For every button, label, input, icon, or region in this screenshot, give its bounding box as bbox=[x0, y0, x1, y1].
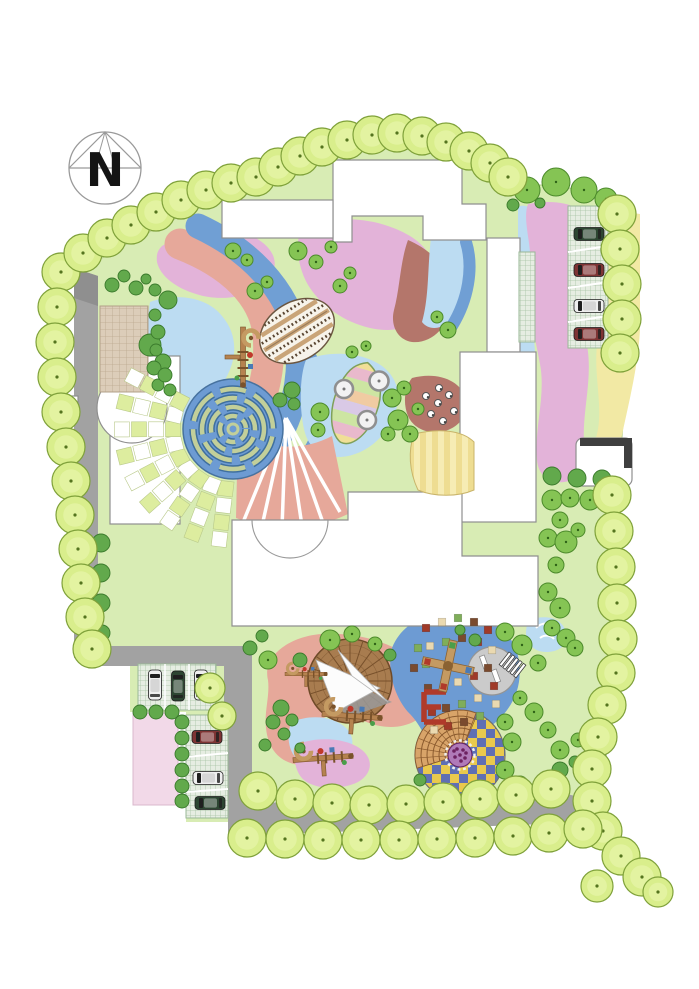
parked-car bbox=[574, 264, 604, 277]
border-tree bbox=[42, 393, 80, 431]
canopy-tree bbox=[344, 626, 360, 642]
shrub bbox=[149, 309, 161, 321]
border-tree bbox=[350, 786, 388, 824]
canopy-tree bbox=[571, 177, 597, 203]
canopy-tree bbox=[542, 490, 562, 510]
border-tree bbox=[239, 772, 277, 810]
canopy-tree bbox=[550, 598, 570, 618]
mosaic-tile bbox=[458, 700, 466, 708]
shrub bbox=[286, 714, 298, 726]
checker-cell bbox=[211, 531, 228, 548]
shrub bbox=[384, 649, 396, 661]
parked-car bbox=[192, 731, 222, 744]
shrub bbox=[284, 382, 300, 398]
canopy-tree bbox=[548, 557, 564, 573]
border-tree bbox=[266, 820, 304, 858]
border-tree bbox=[424, 783, 462, 821]
canopy-tree bbox=[311, 423, 325, 437]
striped-deck bbox=[410, 431, 474, 496]
border-tree bbox=[47, 428, 85, 466]
border-tree bbox=[38, 358, 76, 396]
canopy-tree bbox=[368, 637, 382, 651]
canopy-tree bbox=[309, 255, 323, 269]
border-tree bbox=[601, 334, 639, 372]
border-tree bbox=[595, 512, 633, 550]
shrub bbox=[507, 199, 519, 211]
shrub bbox=[149, 705, 163, 719]
paver-path-east bbox=[519, 252, 535, 342]
border-tree bbox=[62, 564, 100, 602]
shrub bbox=[175, 715, 189, 729]
border-tree bbox=[342, 821, 380, 859]
checker-cell bbox=[213, 514, 230, 531]
border-tree bbox=[497, 776, 535, 814]
mosaic-tile bbox=[430, 726, 438, 734]
shrub bbox=[149, 284, 161, 296]
building-east-wing-mid bbox=[460, 352, 536, 522]
parked-car bbox=[574, 300, 604, 313]
canopy-tree bbox=[539, 583, 557, 601]
shrub bbox=[159, 291, 177, 309]
canopy-tree bbox=[241, 254, 253, 266]
mosaic-tile bbox=[470, 618, 478, 626]
canopy-tree bbox=[431, 311, 443, 323]
mosaic-tile bbox=[474, 694, 482, 702]
border-tree bbox=[52, 462, 90, 500]
shrub bbox=[278, 728, 290, 740]
checker-cell bbox=[133, 443, 151, 461]
canopy-tree bbox=[540, 722, 556, 738]
canopy-tree bbox=[344, 267, 356, 279]
border-tree bbox=[56, 496, 94, 534]
border-tree bbox=[66, 598, 104, 636]
mosaic-tile bbox=[484, 664, 492, 672]
canopy-tree bbox=[530, 655, 546, 671]
stepping-stone bbox=[428, 411, 435, 418]
checker-cell bbox=[166, 434, 184, 452]
shrub bbox=[175, 731, 189, 745]
border-tree bbox=[603, 265, 641, 303]
shrub bbox=[568, 469, 586, 487]
mosaic-tile bbox=[454, 614, 462, 622]
checker-cell bbox=[165, 422, 180, 437]
shrub bbox=[256, 630, 268, 642]
canopy-tree bbox=[261, 276, 273, 288]
border-tree bbox=[598, 584, 636, 622]
shrub bbox=[414, 774, 426, 786]
mosaic-tile bbox=[438, 618, 446, 626]
shrub bbox=[129, 281, 143, 295]
parked-car bbox=[195, 797, 225, 810]
shrub bbox=[158, 368, 172, 382]
border-tree bbox=[380, 821, 418, 859]
canopy-tree bbox=[440, 322, 456, 338]
round-table bbox=[335, 380, 353, 398]
building-northwest-wing bbox=[222, 200, 333, 238]
border-tree bbox=[599, 620, 637, 658]
shrub bbox=[133, 705, 147, 719]
shrub bbox=[175, 763, 189, 777]
checker-cell bbox=[131, 422, 146, 437]
border-tree bbox=[598, 195, 636, 233]
shrub bbox=[543, 467, 561, 485]
mosaic-tile bbox=[414, 644, 422, 652]
planter-pink-southwest bbox=[133, 713, 178, 805]
border-tree bbox=[276, 780, 314, 818]
canopy-tree bbox=[361, 341, 371, 351]
shrub bbox=[118, 270, 130, 282]
round-table bbox=[358, 411, 376, 429]
border-tree bbox=[564, 810, 602, 848]
shrub bbox=[293, 653, 307, 667]
checker-cell bbox=[116, 447, 134, 465]
border-tree bbox=[59, 530, 97, 568]
border-tree bbox=[643, 877, 673, 907]
border-tree bbox=[597, 548, 635, 586]
stepping-stone bbox=[436, 385, 443, 392]
border-tree bbox=[603, 300, 641, 338]
shrub bbox=[105, 278, 119, 292]
canopy-tree bbox=[497, 714, 513, 730]
canopy-tree bbox=[496, 623, 514, 641]
shrub bbox=[455, 625, 465, 635]
canopy-tree bbox=[503, 733, 521, 751]
canopy-tree bbox=[320, 630, 340, 650]
border-tree bbox=[228, 819, 266, 857]
parked-car bbox=[193, 772, 223, 785]
site-plan-page: N bbox=[0, 0, 699, 989]
canopy-tree bbox=[542, 168, 570, 196]
border-tree bbox=[418, 820, 456, 858]
mosaic-tile bbox=[488, 646, 496, 654]
stepping-stone bbox=[451, 408, 458, 415]
mosaic-tile bbox=[476, 712, 484, 720]
shrub bbox=[151, 325, 165, 339]
border-tree bbox=[73, 630, 111, 668]
shrub bbox=[141, 274, 151, 284]
building-east-wing-upper bbox=[487, 238, 520, 352]
shrub bbox=[175, 779, 189, 793]
checker-cell bbox=[114, 422, 129, 437]
canopy-tree bbox=[552, 512, 568, 528]
canopy-tree bbox=[311, 403, 329, 421]
north-compass: N bbox=[69, 132, 141, 204]
north-label: N bbox=[86, 143, 125, 197]
canopy-tree bbox=[539, 529, 557, 547]
canopy-tree bbox=[325, 241, 337, 253]
checker-cell bbox=[215, 497, 232, 514]
border-tree bbox=[532, 770, 570, 808]
shrub bbox=[175, 794, 189, 808]
canopy-tree bbox=[397, 381, 411, 395]
border-tree bbox=[489, 158, 527, 196]
canopy-tree bbox=[513, 691, 527, 705]
canopy-tree bbox=[525, 703, 543, 721]
shrub bbox=[288, 398, 300, 410]
canopy-tree bbox=[402, 426, 418, 442]
shrub bbox=[469, 634, 481, 646]
mosaic-tile bbox=[422, 624, 430, 632]
parked-car bbox=[574, 228, 604, 241]
border-tree bbox=[36, 323, 74, 361]
shrub bbox=[266, 715, 280, 729]
canopy-tree bbox=[259, 651, 277, 669]
mosaic-tile bbox=[426, 642, 434, 650]
canopy-tree bbox=[571, 523, 585, 537]
border-tree bbox=[593, 476, 631, 514]
border-tree bbox=[581, 870, 613, 902]
parked-car bbox=[149, 670, 162, 700]
canopy-tree bbox=[561, 489, 579, 507]
checker-cell bbox=[133, 398, 151, 416]
shrub bbox=[150, 344, 162, 356]
checker-cell bbox=[148, 422, 163, 437]
border-tree bbox=[195, 673, 225, 703]
checker-cell bbox=[149, 438, 167, 456]
border-tree bbox=[456, 819, 494, 857]
canopy-tree bbox=[412, 403, 424, 415]
canopy-tree bbox=[388, 410, 408, 430]
round-table bbox=[370, 372, 389, 391]
border-tree bbox=[601, 230, 639, 268]
border-tree bbox=[461, 780, 499, 818]
canopy-tree bbox=[225, 243, 241, 259]
canopy-tree bbox=[346, 346, 358, 358]
shrub bbox=[259, 739, 271, 751]
border-tree bbox=[494, 817, 532, 855]
mosaic-tile bbox=[410, 664, 418, 672]
shrub bbox=[164, 384, 176, 396]
border-tree bbox=[530, 814, 568, 852]
mosaic-tile bbox=[490, 682, 498, 690]
border-tree bbox=[579, 718, 617, 756]
shrub bbox=[295, 743, 305, 753]
canopy-tree bbox=[381, 427, 395, 441]
canopy-tree bbox=[551, 741, 569, 759]
canopy-tree bbox=[567, 640, 583, 656]
canopy-tree bbox=[247, 283, 263, 299]
mosaic-tile bbox=[484, 626, 492, 634]
shrub bbox=[243, 641, 257, 655]
checker-cell bbox=[116, 394, 134, 412]
checker-cell bbox=[149, 402, 167, 420]
shrub bbox=[175, 747, 189, 761]
canopy-tree bbox=[333, 279, 347, 293]
border-tree bbox=[387, 785, 425, 823]
parked-car bbox=[574, 328, 604, 341]
hedge-maze bbox=[183, 379, 283, 479]
mosaic-tile bbox=[442, 704, 450, 712]
stepping-stone bbox=[446, 392, 453, 399]
stepping-stone bbox=[435, 400, 442, 407]
stepping-stone bbox=[423, 393, 430, 400]
canopy-tree bbox=[289, 242, 307, 260]
canopy-tree bbox=[512, 635, 532, 655]
stepping-stone bbox=[440, 418, 447, 425]
border-tree bbox=[38, 288, 76, 326]
landscape-master-plan-drawing: N bbox=[0, 0, 699, 989]
shrub bbox=[273, 700, 289, 716]
border-tree bbox=[313, 784, 351, 822]
mosaic-tile bbox=[492, 700, 500, 708]
border-tree bbox=[304, 821, 342, 859]
mosaic-tile bbox=[460, 718, 468, 726]
shrub bbox=[273, 393, 287, 407]
border-tree bbox=[208, 702, 236, 730]
mosaic-tile bbox=[454, 678, 462, 686]
parked-car bbox=[172, 671, 185, 701]
